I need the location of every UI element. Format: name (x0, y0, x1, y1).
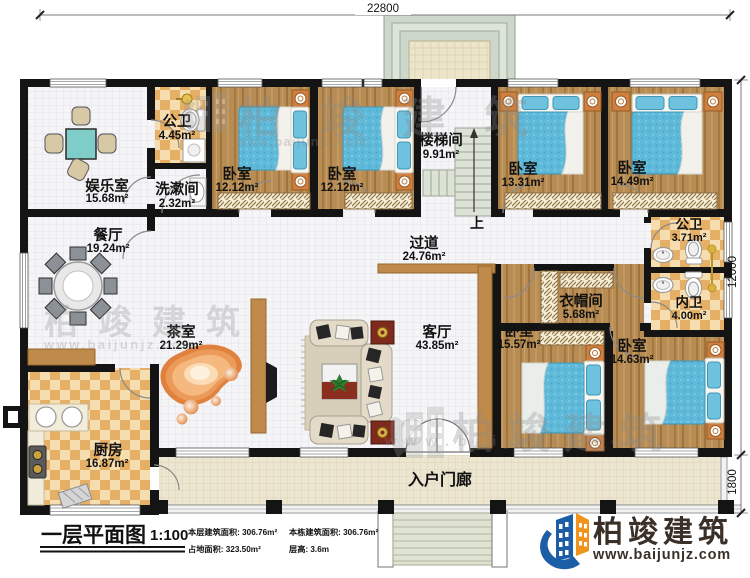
svg-text:厨房: 厨房 (94, 441, 123, 459)
svg-text:内卫: 内卫 (676, 294, 704, 310)
svg-text:过道: 过道 (410, 234, 439, 252)
svg-text:14.63m²: 14.63m² (611, 354, 654, 366)
svg-text:15.68m²: 15.68m² (86, 193, 129, 205)
svg-text:5.68m²: 5.68m² (563, 309, 600, 321)
svg-text:卧室: 卧室 (618, 159, 647, 177)
svg-text:24.76m²: 24.76m² (403, 251, 446, 263)
svg-text:1:100: 1:100 (150, 527, 188, 544)
svg-text:13.31m²: 13.31m² (502, 177, 545, 189)
svg-text:12.12m²: 12.12m² (216, 182, 259, 194)
svg-text:1800: 1800 (727, 469, 739, 495)
svg-text:www.baijunjz.com: www.baijunjz.com (43, 337, 196, 352)
svg-text:4.00m²: 4.00m² (672, 310, 707, 322)
svg-text:卧室: 卧室 (223, 165, 252, 183)
svg-text:14.49m²: 14.49m² (611, 176, 654, 188)
svg-text:客厅: 客厅 (422, 323, 452, 341)
svg-text:9.91m²: 9.91m² (423, 149, 460, 161)
svg-text:衣帽间: 衣帽间 (559, 292, 603, 310)
svg-text:柏竣建筑: 柏竣建筑 (593, 515, 733, 549)
svg-text:12.12m²: 12.12m² (321, 182, 364, 194)
svg-text:上: 上 (470, 215, 484, 231)
svg-text:卧室: 卧室 (618, 337, 647, 355)
svg-text:洗漱间: 洗漱间 (155, 180, 199, 198)
svg-text:卧室: 卧室 (328, 165, 357, 183)
svg-text:19.24m²: 19.24m² (87, 243, 130, 255)
svg-text:12000: 12000 (727, 256, 739, 288)
svg-text:占地面积: 323.50m²: 占地面积: 323.50m² (188, 544, 261, 554)
svg-text:层高: 3.6m: 层高: 3.6m (289, 544, 329, 554)
svg-text:2.32m²: 2.32m² (159, 198, 196, 210)
svg-text:一层平面图: 一层平面图 (41, 524, 146, 547)
svg-text:本层建筑面积: 306.76m²: 本层建筑面积: 306.76m² (188, 527, 277, 537)
svg-text:卧室: 卧室 (509, 160, 538, 178)
svg-text:www.baijunjz.com: www.baijunjz.com (235, 134, 367, 149)
svg-text:16.87m²: 16.87m² (86, 458, 129, 470)
svg-text:43.85m²: 43.85m² (416, 340, 459, 352)
svg-text:15.57m²: 15.57m² (498, 339, 541, 351)
svg-text:www.baijunjz.com: www.baijunjz.com (384, 433, 650, 450)
svg-text:入户门廊: 入户门廊 (408, 470, 472, 489)
svg-text:22800: 22800 (367, 3, 399, 15)
svg-text:餐厅: 餐厅 (94, 226, 123, 244)
svg-text:公卫: 公卫 (676, 217, 704, 232)
svg-text:卧室: 卧室 (505, 322, 534, 340)
svg-text:本栋建筑面积: 306.76m²: 本栋建筑面积: 306.76m² (289, 527, 378, 537)
svg-text:www.baijunjz.com: www.baijunjz.com (592, 547, 731, 563)
svg-text:3.71m²: 3.71m² (672, 232, 707, 244)
